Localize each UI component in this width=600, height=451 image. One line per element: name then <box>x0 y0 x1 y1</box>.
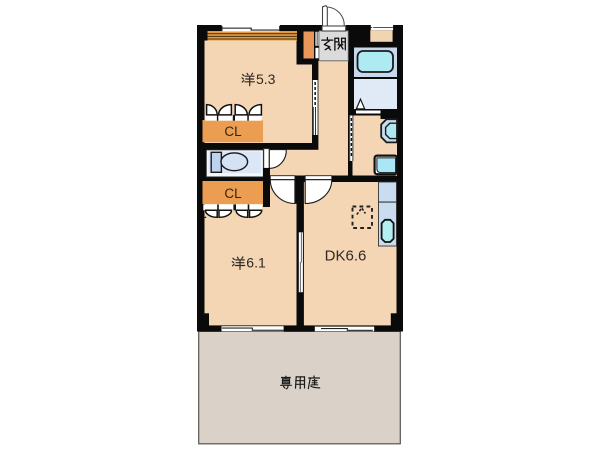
svg-text:6.1: 6.1 <box>246 255 266 271</box>
svg-text:CL: CL <box>224 124 242 139</box>
svg-text:CL: CL <box>224 186 242 201</box>
svg-text:5.3: 5.3 <box>256 71 276 87</box>
svg-text:DK6.6: DK6.6 <box>325 248 367 265</box>
